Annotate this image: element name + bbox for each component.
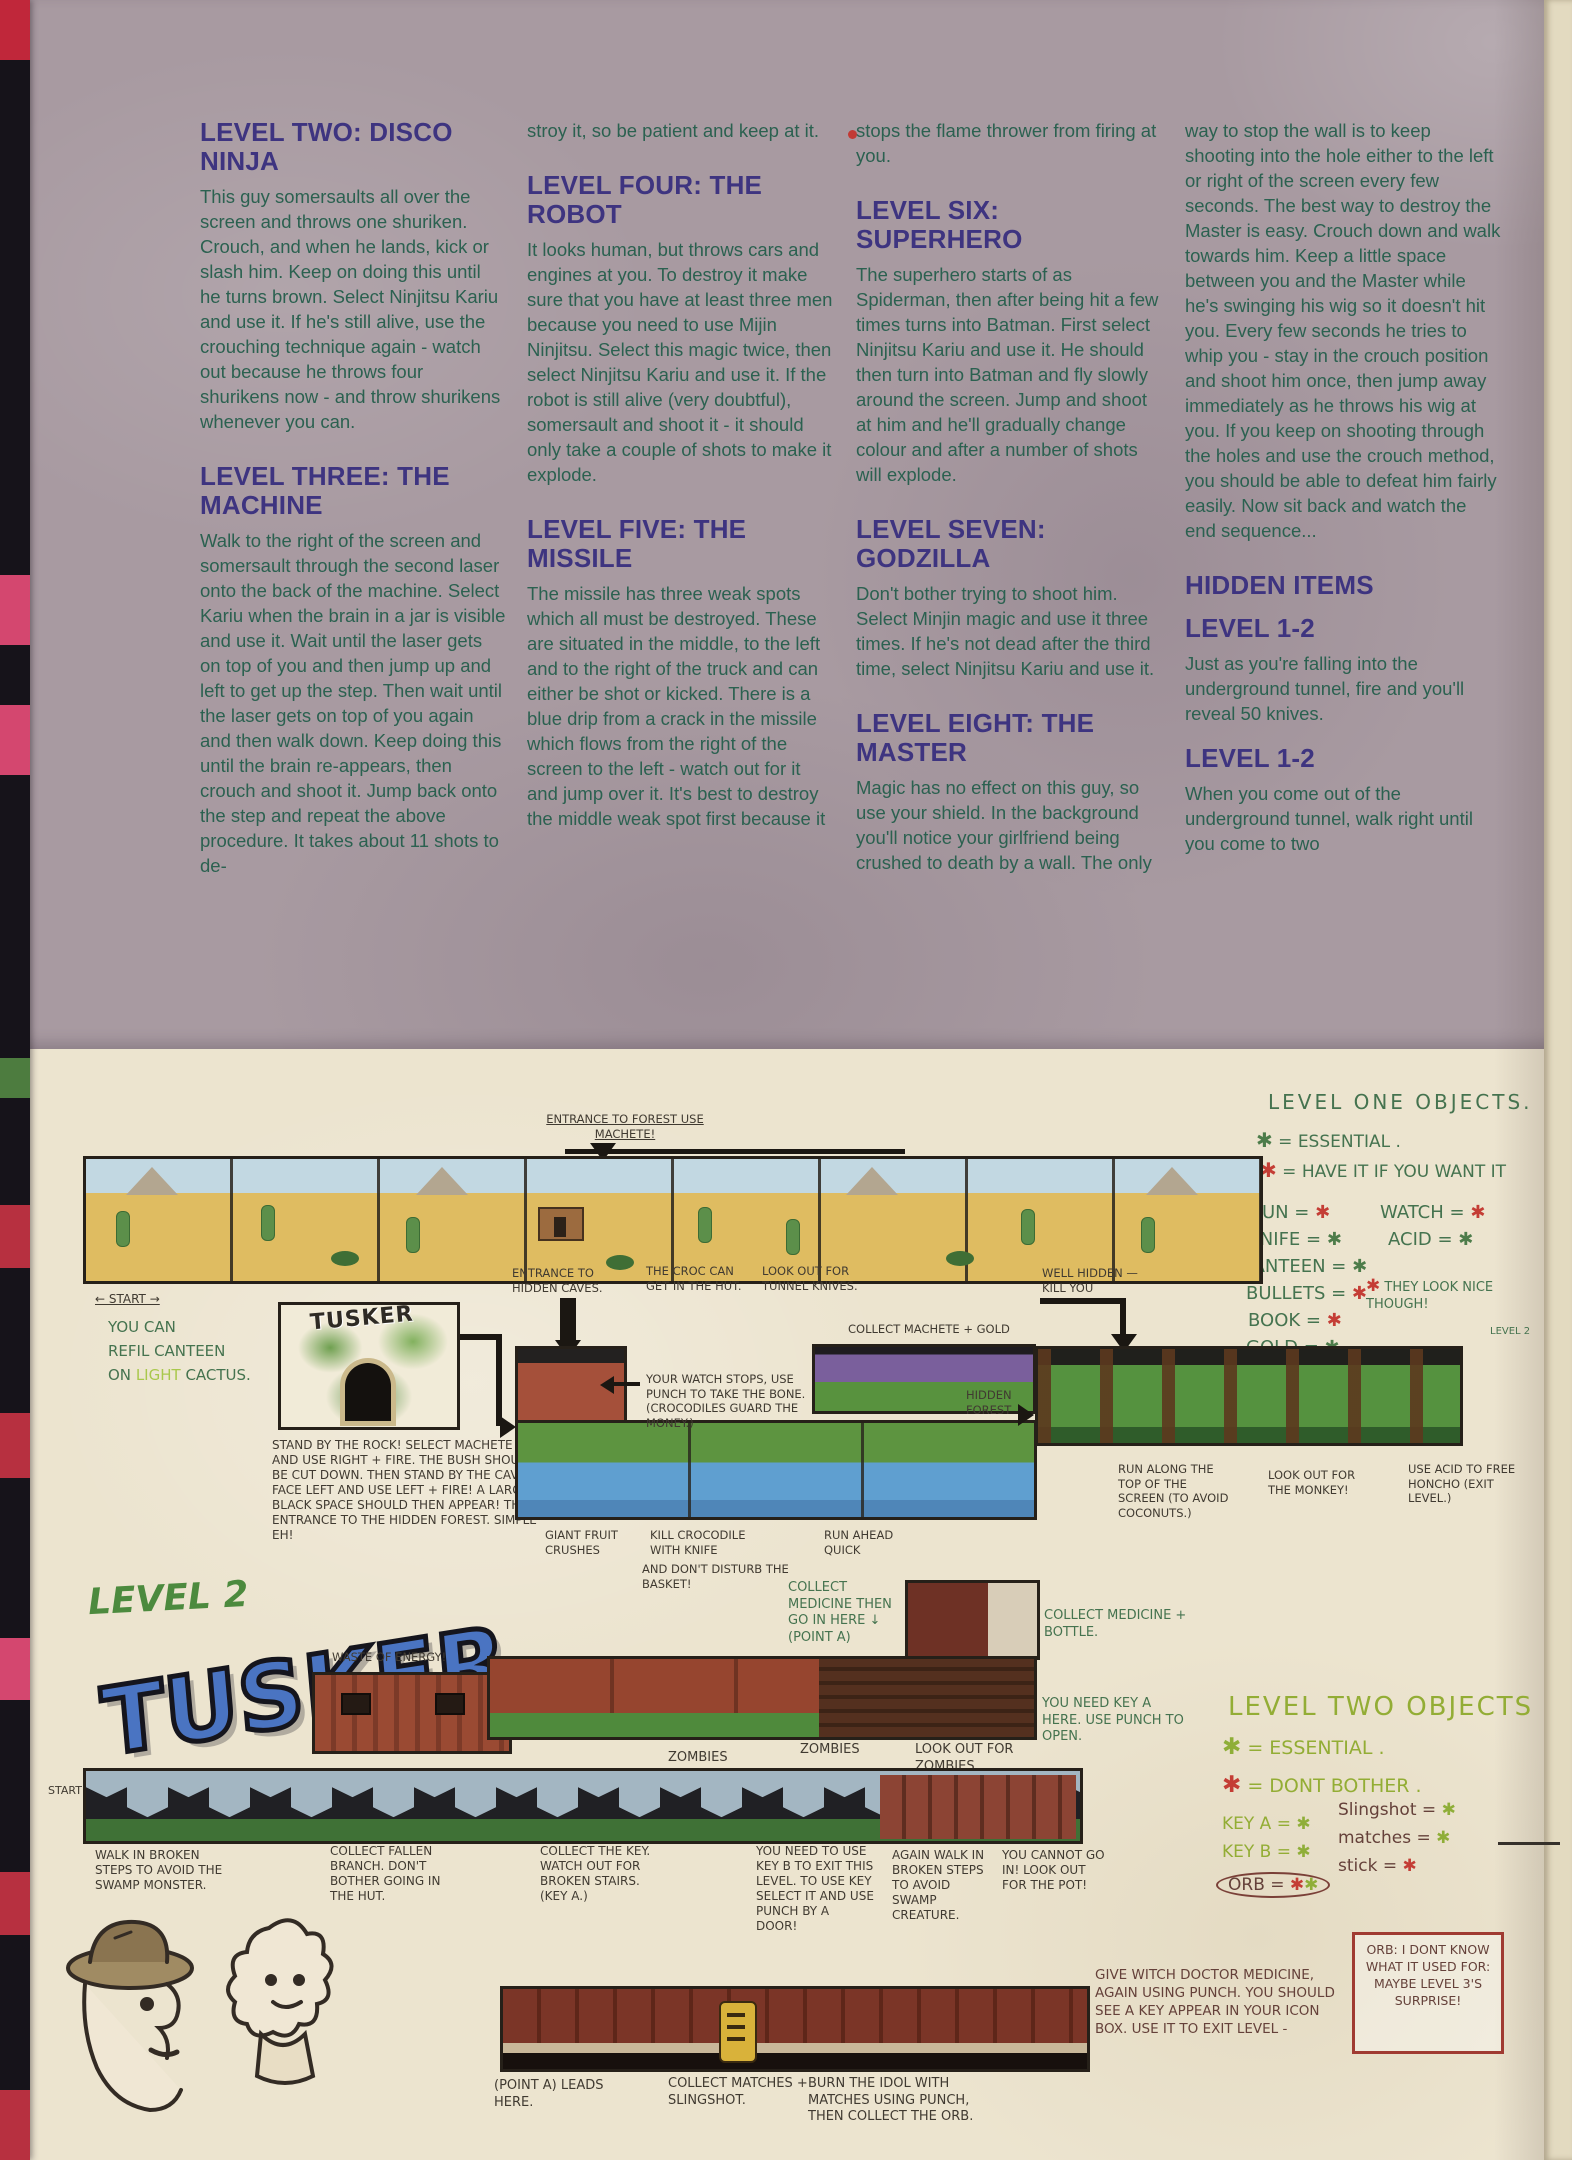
refill-light-word: LIGHT — [136, 1366, 181, 1384]
item-book: BOOK = — [1248, 1310, 1321, 1331]
next-page-edge — [1544, 0, 1572, 2160]
knife-asterisk-icon: ✱ — [1327, 1229, 1342, 1250]
cactus-icon — [698, 1207, 712, 1243]
zombie-street-map — [487, 1656, 1037, 1740]
l2-essential-asterisk-icon: ✱ — [1222, 1734, 1241, 1760]
key-a-asterisk-icon: ✱ — [1296, 1814, 1310, 1834]
cactus-icon — [786, 1219, 800, 1255]
paragraph-level-six: The superhero starts of as Spiderman, th… — [856, 262, 1162, 487]
article-column-4: way to stop the wall is to keep shooting… — [1185, 118, 1501, 858]
key-b-asterisk-icon: ✱ — [1296, 1842, 1310, 1862]
article-column-3: stops the flame thrower from firing at y… — [856, 118, 1162, 877]
tunnel-knives-label: LOOK OUT FOR TUNNEL KNIVES. — [762, 1264, 867, 1293]
refill-on: ON — [108, 1366, 131, 1384]
zombies-label-2: ZOMBIES — [800, 1742, 860, 1759]
medicine-inset-map — [905, 1580, 1040, 1660]
stick-asterisk-icon: ✱ — [1403, 1856, 1417, 1876]
dont-disturb-label: AND DON'T DISTURB THE BASKET! — [642, 1562, 792, 1591]
paragraph-level-three: Walk to the right of the screen and some… — [200, 528, 506, 878]
binding-segment — [0, 1638, 30, 1700]
binding-segment — [0, 1058, 30, 1098]
key-b-label: YOU NEED TO USE KEY B TO EXIT THIS LEVEL… — [756, 1844, 874, 1934]
brick-buildings-block — [880, 1775, 1076, 1839]
binding-edge — [0, 0, 30, 2160]
paragraph-level-five: The missile has three weak spots which a… — [527, 581, 833, 831]
cactus-icon — [1141, 1217, 1155, 1253]
heading-level-two: LEVEL TWO: DISCO NINJA — [200, 118, 506, 176]
point-a-label: (POINT A) LEADS HERE. — [494, 2078, 629, 2111]
medicine-bottle-label: COLLECT MEDICINE + BOTTLE. — [1044, 1608, 1189, 1641]
again-walk-label: AGAIN WALK IN BROKEN STEPS TO AVOID SWAM… — [892, 1848, 992, 1923]
heading-level-1-2-b: LEVEL 1-2 — [1185, 744, 1501, 773]
cactus-icon — [261, 1205, 275, 1241]
book-asterisk-icon: ✱ — [1327, 1310, 1342, 1331]
heading-level-eight: LEVEL EIGHT: THE MASTER — [856, 709, 1162, 767]
binding-segment — [0, 2090, 30, 2160]
cannot-go-label: YOU CANNOT GO IN! LOOK OUT FOR THE POT! — [1002, 1848, 1114, 1893]
collect-matches-label: COLLECT MATCHES + SLINGSHOT. — [668, 2076, 808, 2109]
start-label: ← START → — [95, 1292, 160, 1307]
magazine-page: LEVEL TWO: DISCO NINJA This guy somersau… — [0, 0, 1572, 2160]
mountain-icon — [1146, 1167, 1198, 1195]
legend-want-label: = HAVE IT IF YOU WANT IT — [1282, 1162, 1506, 1182]
l2-item-key-b: KEY B = — [1222, 1842, 1291, 1862]
run-top-label: RUN ALONG THE TOP OF THE SCREEN (TO AVOI… — [1118, 1462, 1230, 1520]
route-line — [565, 1149, 905, 1154]
hut-inset-map — [312, 1672, 512, 1754]
bush-icon — [331, 1251, 359, 1266]
paragraph-hidden-b: When you come out of the underground tun… — [1185, 781, 1501, 856]
waste-energy-label: WASTE OF ENERGY! — [332, 1650, 472, 1665]
level2-exit-marker: LEVEL 2 — [1490, 1326, 1540, 1338]
cave-entrance-icon — [345, 1363, 391, 1421]
gun-asterisk-icon: ✱ — [1315, 1202, 1330, 1223]
paragraph-continuation: stroy it, so be patient and keep at it. — [527, 118, 833, 143]
acid-asterisk-icon: ✱ — [1458, 1229, 1473, 1250]
temple-map — [500, 1986, 1090, 2072]
l2-item-orb: ORB = — [1228, 1875, 1285, 1895]
orb-green-asterisk-icon: ✱ — [1304, 1875, 1318, 1895]
legend-essential-label: = ESSENTIAL . — [1278, 1132, 1401, 1152]
nice-note-text: THEY LOOK NICE THOUGH! — [1366, 1280, 1493, 1312]
dark-building-block — [819, 1659, 1034, 1737]
well-hidden-label: WELL HIDDEN — KILL YOU — [1042, 1266, 1152, 1295]
l2-essential-label: = ESSENTIAL . — [1247, 1737, 1384, 1759]
watch-asterisk-icon: ✱ — [1470, 1202, 1485, 1223]
heading-level-seven: LEVEL SEVEN: GODZILLA — [856, 515, 1162, 573]
l2-item-stick: stick = — [1338, 1856, 1397, 1876]
article-column-1: LEVEL TWO: DISCO NINJA This guy somersau… — [200, 118, 506, 880]
orb-red-asterisk-icon: ✱ — [1290, 1875, 1304, 1895]
connector-arrow-icon — [500, 1416, 516, 1438]
orb-note-box: ORB: I DONT KNOW WHAT IT USED FOR: MAYBE… — [1352, 1932, 1504, 2054]
heading-level-six: LEVEL SIX: SUPERHERO — [856, 196, 1162, 254]
slingshot-asterisk-icon: ✱ — [1442, 1800, 1456, 1820]
orb-note-text: ORB: I DONT KNOW WHAT IT USED FOR: MAYBE… — [1363, 1941, 1493, 2009]
croc-hut-label: THE CROC CAN GET IN THE HUT. — [646, 1264, 751, 1293]
paragraph-continuation: way to stop the wall is to keep shooting… — [1185, 118, 1501, 543]
paragraph-level-two: This guy somersaults all over the screen… — [200, 184, 506, 434]
l2-item-key-a: KEY A = — [1222, 1814, 1291, 1834]
fallen-branch-label: COLLECT FALLEN BRANCH. DON'T BOTHER GOIN… — [330, 1844, 442, 1904]
entrance-caves-label: ENTRANCE TO HIDDEN CAVES. — [512, 1266, 632, 1295]
l2-dont-asterisk-icon: ✱ — [1222, 1772, 1241, 1798]
binding-segment — [0, 575, 30, 645]
refill-line2: REFIL CANTEEN — [108, 1342, 225, 1360]
forest-connector-line — [1120, 1298, 1126, 1338]
level2-swamp-map — [83, 1768, 1083, 1844]
collect-machete-label: COLLECT MACHETE + GOLD — [848, 1322, 1058, 1337]
item-acid: ACID = — [1388, 1229, 1453, 1250]
l2-dont-label: = DONT BOTHER . — [1247, 1775, 1421, 1797]
paragraph-level-eight: Magic has no effect on this guy, so use … — [856, 775, 1162, 875]
kill-croc-label: KILL CROCODILE WITH KNIFE — [650, 1528, 760, 1557]
cactus-icon — [1021, 1209, 1035, 1245]
cactus-icon — [406, 1217, 420, 1253]
burn-orb-label: BURN THE IDOL WITH MATCHES USING PUNCH, … — [808, 2076, 988, 2126]
heading-level-three: LEVEL THREE: THE MACHINE — [200, 462, 506, 520]
watch-arrow-line — [612, 1382, 640, 1386]
paragraph-hidden-a: Just as you're falling into the undergro… — [1185, 651, 1501, 726]
watch-stops-label: YOUR WATCH STOPS, USE PUNCH TO TAKE THE … — [646, 1372, 826, 1430]
item-bullets: BULLETS = — [1246, 1283, 1346, 1304]
witch-doctor-label: GIVE WITCH DOCTOR MEDICINE, AGAIN USING … — [1095, 1966, 1340, 2038]
caves-arrow-line — [560, 1298, 576, 1342]
l2-item-slingshot: Slingshot = — [1338, 1800, 1436, 1820]
binding-segment — [0, 705, 30, 775]
forest-connector-line — [1040, 1298, 1126, 1304]
giant-fruit-label: GIANT FRUIT CRUSHES — [545, 1528, 637, 1557]
heading-level-1-2-a: LEVEL 1-2 — [1185, 614, 1501, 643]
heading-level-five: LEVEL FIVE: THE MISSILE — [527, 515, 833, 573]
window-icon — [435, 1693, 465, 1715]
collect-key-label: COLLECT THE KEY. WATCH OUT FOR BROKEN ST… — [540, 1844, 658, 1904]
paragraph-continuation: stops the flame thrower from firing at y… — [856, 118, 1162, 168]
l2-item-matches: matches = — [1338, 1828, 1431, 1848]
mountain-icon — [126, 1167, 178, 1195]
paragraph-level-seven: Don't bother trying to shoot him. Select… — [856, 581, 1162, 681]
medicine-here-label: COLLECT MEDICINE THEN GO IN HERE ↓ (POIN… — [788, 1580, 908, 1646]
binding-segment — [0, 1872, 30, 1935]
run-ahead-label: RUN AHEAD QUICK — [824, 1528, 914, 1557]
binding-segment — [0, 0, 30, 60]
page-curl-shadow — [1494, 0, 1544, 2160]
window-icon — [341, 1693, 371, 1715]
entrance-forest-label: ENTRANCE TO FOREST USE MACHETE! — [540, 1112, 710, 1141]
essential-asterisk-icon: ✱ — [1256, 1128, 1273, 1152]
paragraph-level-four: It looks human, but throws cars and engi… — [527, 237, 833, 487]
level1-objects-title: LEVEL ONE OBJECTS. — [1268, 1090, 1533, 1114]
hut-icon — [538, 1207, 584, 1241]
zombies-label-1: ZOMBIES — [668, 1750, 728, 1767]
cactus-icon — [116, 1211, 130, 1247]
level2-objects-title: LEVEL TWO OBJECTS — [1228, 1692, 1572, 1722]
rock-caption: STAND BY THE ROCK! SELECT MACHETE AND US… — [272, 1438, 540, 1543]
connector-line — [496, 1334, 502, 1426]
binding-segment — [0, 1413, 30, 1478]
article-column-2: stroy it, so be patient and keep at it. … — [527, 118, 833, 833]
item-watch: WATCH = — [1380, 1202, 1465, 1223]
binding-segment — [0, 1205, 30, 1268]
bullets-asterisk-icon: ✱ — [1352, 1283, 1367, 1304]
bush-icon — [946, 1251, 974, 1266]
idol-icon — [719, 2001, 757, 2063]
key-a-door-label: YOU NEED KEY A HERE. USE PUNCH TO OPEN. — [1042, 1696, 1192, 1746]
level2-start-label: START — [48, 1784, 82, 1797]
refill-line1: YOU CAN — [108, 1318, 176, 1336]
cartoon-characters-icon — [55, 1900, 345, 2145]
margin-rule — [1498, 1842, 1560, 1845]
nice-note-asterisk-icon: ✱ — [1366, 1276, 1380, 1296]
heading-level-four: LEVEL FOUR: THE ROBOT — [527, 171, 833, 229]
refill-cactus: CACTUS. — [185, 1366, 250, 1384]
canteen-asterisk-icon: ✱ — [1352, 1256, 1367, 1277]
jungle-pool-map — [515, 1420, 1037, 1520]
level2-script-title: LEVEL 2 — [87, 1574, 249, 1623]
matches-asterisk-icon: ✱ — [1436, 1828, 1450, 1848]
mountain-icon — [416, 1167, 468, 1195]
acid-free-label: USE ACID TO FREE HONCHO (EXIT LEVEL.) — [1408, 1462, 1520, 1506]
walk-broken-label: WALK IN BROKEN STEPS TO AVOID THE SWAMP … — [95, 1848, 235, 1893]
monkey-label: LOOK OUT FOR THE MONKEY! — [1268, 1468, 1356, 1497]
hidden-forest-map — [1035, 1346, 1463, 1446]
mountain-icon — [846, 1167, 898, 1195]
hidden-forest-arrow-icon — [1018, 1404, 1034, 1426]
heading-hidden-items: HIDDEN ITEMS — [1185, 571, 1501, 600]
